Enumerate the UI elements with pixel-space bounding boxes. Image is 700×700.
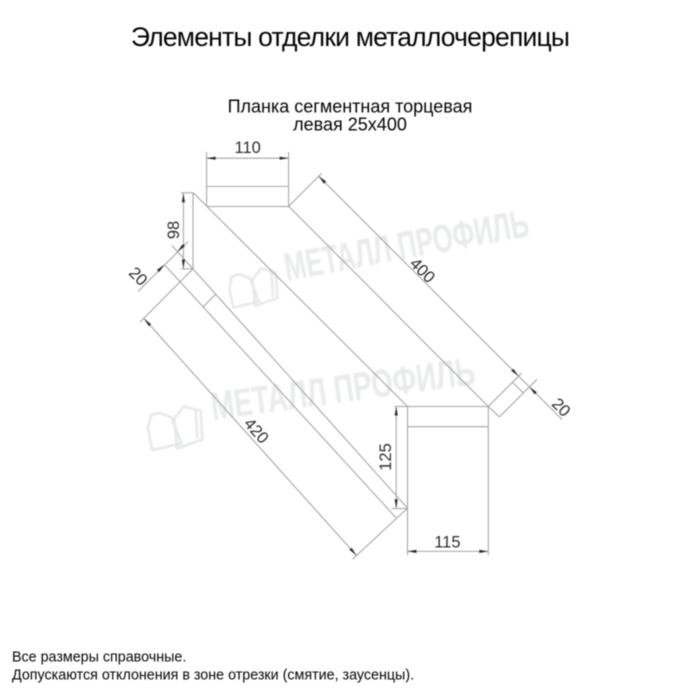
svg-text:Планка сегментная торцевая: Планка сегментная торцевая — [228, 96, 473, 116]
svg-text:Элементы отделки металлочерепи: Элементы отделки металлочерепицы — [131, 22, 569, 52]
svg-text:125: 125 — [377, 443, 395, 471]
svg-text:левая 25х400: левая 25х400 — [293, 115, 407, 135]
svg-text:Допускаются отклонения в зоне: Допускаются отклонения в зоне отрезки (с… — [12, 668, 414, 684]
svg-text:110: 110 — [235, 139, 261, 157]
svg-text:Все размеры справочные.: Все размеры справочные. — [12, 650, 186, 666]
svg-text:98: 98 — [165, 221, 183, 239]
svg-text:115: 115 — [434, 533, 460, 551]
